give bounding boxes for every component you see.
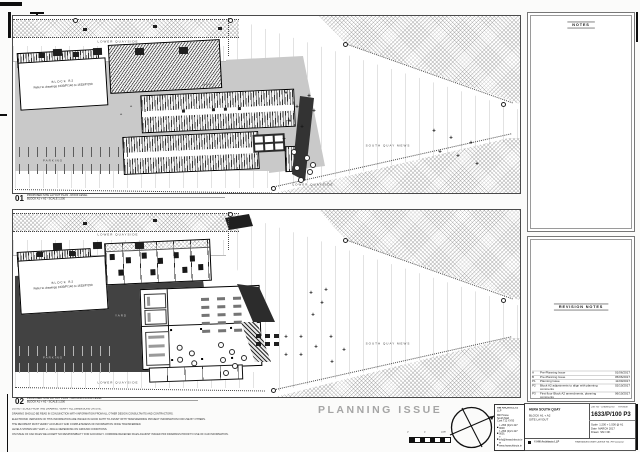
rooflight [69,251,75,256]
label-lower-quayside-bottom: LOWER QUAYSIDE [97,382,138,385]
grid-cross: + [130,104,132,109]
label-mews: MEWS [202,84,215,87]
tree-icon: + [475,163,479,168]
title-block-fields: Scale 1:200 + 1:500 @ A1 Date MARCH 2017… [591,423,631,434]
divider [589,420,635,421]
number-label: Job No - Drawing No [591,406,614,409]
furniture [190,255,195,261]
rev-id: P1 [532,379,540,383]
parking-tick [100,147,101,157]
plot-roof [53,49,62,56]
parking-tick [91,164,92,174]
parking-tick [82,346,83,356]
parking-tick [19,363,20,373]
furniture [110,254,115,260]
furniture [174,252,179,258]
tree-icon: + [284,336,288,341]
planter [256,342,261,346]
bin [265,136,273,142]
parking-tick [100,363,101,373]
parking-tick [118,147,119,157]
margin-line [7,394,8,452]
plot-roof [135,242,144,249]
parking-tick [28,363,29,373]
tree-icon: + [320,302,324,307]
boundary-line [228,18,229,56]
plot-roof [93,48,102,55]
rev-date: 11/09/2017 [609,379,630,383]
planter [265,334,270,338]
tree-icon: + [456,155,460,160]
parking-tick [28,346,29,356]
number-labels: Job No - Drawing No Revision [591,406,628,409]
rev-date: 05/06/2017 [609,375,630,379]
drawing-number: 1633/P/100 P3 [591,412,631,418]
bin [265,144,273,150]
disclaimer: DRAWING SHOULD BE READ IN CONJUNCTION WI… [12,413,247,416]
table-symbol [310,162,316,168]
tree-icon: + [287,120,291,125]
disclaimer: LEVELS SHOWN MAY VARY +/- 300mm DEPENDIN… [12,428,247,431]
parking-tick [73,363,74,373]
survey-marker [501,298,506,303]
table-symbol [304,155,310,161]
disclaimer: ON ISSUE OF CAD FILES WE ACCEPT NO RESPO… [12,433,247,436]
seating [201,298,209,301]
grid-cross: + [132,88,134,93]
parking-tick [127,147,128,157]
tree-icon: + [307,95,311,100]
wc-room [144,309,167,325]
planning-issue-stamp: PLANNING ISSUE [318,404,442,416]
project-info: HERA SOUTH QUAY BLOCK A1 + A2 SITE LAYOU… [529,408,591,422]
tree-icon: + [324,289,328,294]
furniture [182,267,187,273]
tree-icon: + [342,349,346,354]
label-lower-quayside-bottom: LOWER QUAYSIDE [292,184,333,187]
wc-room [144,293,167,309]
table-symbol [291,149,297,155]
table-symbol [232,363,238,369]
label-yard: YARD [115,315,127,318]
mews-roof-edge [105,240,209,253]
rev-note: Pre-Planning Issue [540,375,609,379]
divider [525,438,635,439]
fold-mark [0,114,7,116]
date-label: Date [591,427,597,430]
boundary-mark [153,219,157,222]
architect-info: HW ARCHITECTS LLP Mill House South Mall … [497,407,522,448]
planter [274,342,279,346]
mews-houses [104,239,212,286]
rev-date: 06/10/2017 [609,392,630,400]
parking-tick [73,147,74,157]
drawn-label: Drawn [591,431,599,434]
seating [217,297,225,300]
grid-cross: + [142,88,144,93]
survey-marker [271,388,276,393]
furniture [142,252,147,258]
table-symbol [177,357,183,363]
seating [234,329,242,332]
furniture [150,269,155,275]
parking-tick [55,147,56,157]
margin-line [636,12,638,42]
plan1-number: 01 [15,194,24,203]
parking-tick [37,164,38,174]
boundary-mark [83,28,87,31]
parking-tick [64,147,65,157]
furniture [198,264,203,270]
survey-marker [228,18,233,23]
parking-tick [118,164,119,174]
parking-tick [55,363,56,373]
tree-icon: + [330,361,334,366]
dormer [224,108,227,111]
disclaimer-notes: DO NOT SCALE FROM THIS DRAWING. VERIFY A… [12,408,256,438]
parking-tick [64,363,65,373]
parking-tick [28,164,29,174]
date-value: MARCH 2017 [598,427,615,430]
survey-marker [73,18,78,23]
project-name: HERA SOUTH QUAY [529,408,591,412]
revision-label: Revision [618,406,628,409]
column [171,359,173,361]
scale-bar-label: 0 [407,431,408,434]
rev-date: 02/10/2017 [609,384,630,392]
parking-tick [55,164,56,174]
table-symbol [229,349,235,355]
revision-notes-title: REVISION NOTES [554,304,608,311]
revision-row: B Pre-Planning Issue 05/06/2017 [532,375,630,379]
parking-tick [82,147,83,157]
tree-icon: + [329,336,333,341]
plot-roof [53,243,62,250]
parking-tick [127,164,128,174]
seating [218,313,226,316]
notes-title: NOTES [567,22,594,29]
parking-tick [82,164,83,174]
table-symbol [223,370,229,376]
kitchen-room [145,331,170,366]
disclaimer: THE RECIPIENT MUST VERIFY ACCURACY AND C… [12,423,247,426]
drawn-value: SM / DK [600,431,610,434]
parking-tick [91,147,92,157]
table-symbol [298,177,304,183]
column [231,357,233,359]
seating [233,297,241,300]
drawing-sheet: BLOCK B2 Refer to drawings 1633/P/140 to… [0,0,640,452]
seating [233,305,241,308]
grid-cross: + [112,88,114,93]
parking-tick [109,363,110,373]
tree-icon: + [311,314,315,319]
parking-tick [109,147,110,157]
boundary-line [228,212,229,250]
table-symbol [294,165,300,171]
bin [275,143,283,149]
table-symbol [220,357,226,363]
boundary-line [15,189,272,194]
bin-store [253,133,286,153]
plan-viewport-ground: BLOCK B2 Refer to drawings 1633/P/140 to… [12,209,521,398]
seating [234,321,242,324]
planter [274,334,279,338]
rev-note: Block A2 adjustments to align with plann… [540,384,609,392]
building-a-roof [140,89,296,134]
parking-tick [37,147,38,157]
tree-icon: + [314,346,318,351]
corner-mark [8,12,11,38]
seating [201,306,209,309]
revision-notes-panel: REVISION NOTES A Pre-Planning Issue 01/0… [527,236,635,402]
copyright-text: © HW Architects LLP [534,441,559,444]
scale-label: Scale [591,423,598,426]
parking-tick [109,346,110,356]
table-symbol [241,355,247,361]
scale-bar-label: 10m [441,431,446,434]
disclaimer: ELECTRONIC VERSIONS OF THIS INFORMATION … [12,418,247,421]
column [200,328,202,330]
block-b2-note: BLOCK B2 Refer to drawings 1633/P/140 to… [17,255,108,314]
bin [255,144,263,150]
rev-id: A [532,371,540,375]
label-lower-quayside-top: LOWER QUAYSIDE [97,234,138,237]
revision-table: A Pre-Planning Issue 01/06/2017 B Pre-Pl… [532,370,630,399]
scale-value: 1:200 + 1:500 @ A1 [599,423,623,426]
seating [218,329,226,332]
parking-tick [19,147,20,157]
revision-row: P1 Planning Issue 11/09/2017 [532,379,630,383]
parking-tick [100,164,101,174]
plan2-caption: PROPOSED SITE LAYOUT PLAN - GROUND FLOOR… [27,397,198,403]
parking-tick [46,147,47,157]
label-south-quay-mews: SOUTH QUAY MEWS [366,145,411,148]
parking-tick [46,363,47,373]
dormer [182,109,185,112]
grid-cross: + [120,112,122,117]
architect-stamp: HW ARCHITECTS LLP Mill House South Mall … [494,404,525,451]
tree-icon: + [432,130,436,135]
drawing-title: SITE LAYOUT [529,418,591,422]
seating [202,314,210,317]
parking-tick [91,346,92,356]
parking-tick [55,346,56,356]
tree-icon: + [300,126,304,131]
boundary-mark [83,222,87,225]
parking-tick [19,164,20,174]
tree-icon: + [449,137,453,142]
label-parking: PARKING [43,160,63,163]
column [201,358,203,360]
block-b2-note: BLOCK B2 Refer to drawings 1633/P/140 to… [18,57,109,110]
revision-row: P3 First floor Block A2 amendments, plan… [532,391,630,399]
bin [255,136,263,142]
parking-tick [19,346,20,356]
seating [202,322,210,325]
furniture [118,270,123,276]
plan1-caption: PROPOSED SITE LAYOUT PLAN - ROOF LEVEL B… [27,194,225,200]
parking-tick [91,363,92,373]
scale-bar [409,437,451,443]
survey-marker [343,42,348,47]
parking-tick [28,147,29,157]
table-symbol [218,342,224,348]
rev-id: B [532,375,540,379]
tree-icon: + [309,292,313,297]
rooflight [37,252,43,257]
label-south-quay-mews: SOUTH QUAY MEWS [366,343,411,346]
column [230,327,232,329]
furniture [126,257,131,263]
tree-icon: + [469,142,473,147]
margin-line [636,404,638,450]
firm-logo-icon [528,441,531,444]
plot-roof [179,47,188,54]
building-b-roof [122,131,260,175]
label-yard: YARD [141,119,153,122]
furniture [158,258,163,264]
dormer [212,108,215,111]
dormer [238,107,241,110]
parking-tick [73,164,74,174]
parking-tick [82,363,83,373]
seating [234,313,242,316]
label-parking: PARKING [43,357,63,360]
rev-id: P2 [532,384,540,392]
survey-marker [501,102,506,107]
table-symbol [189,350,195,356]
parking-tick [100,346,101,356]
rev-date: 01/06/2017 [609,371,630,375]
parking-tick [109,164,110,174]
north-arrow-icon [449,404,495,451]
parking-tick [37,346,38,356]
scale-bar-label: 5 [424,431,425,434]
parking-tick [73,346,74,356]
seating [217,305,225,308]
licence-text: Reproduced under Licence No. AR 0021017 [575,441,624,444]
plan2-number: 02 [15,397,24,406]
plan-viewport-roof: BLOCK B2 Refer to drawings 1633/P/140 to… [12,15,521,194]
rev-note: First floor Block A2 amendments, plannin… [540,392,609,400]
rooflight [73,52,79,57]
tree-icon: + [438,151,442,156]
table-symbol [307,169,313,175]
rooflight [39,53,45,58]
plot-roof [93,242,102,249]
rev-id: P3 [532,392,540,400]
tree-icon: + [284,92,288,97]
tree-icon: + [312,110,316,115]
tree-icon: + [299,354,303,359]
quay-hatch-band [13,213,239,232]
parking-tick [37,363,38,373]
parking-tick [64,346,65,356]
corner-mark [0,2,22,6]
parking-tick [46,164,47,174]
survey-marker [343,238,348,243]
rev-note: Planning Issue [540,379,609,383]
seating [202,330,210,333]
boundary-mark [153,25,157,28]
tree-icon: + [295,106,299,111]
plan1-caption-scale: BLOCK A1 + A2 - SCALE 1:200 [27,198,225,201]
boundary-mark [218,27,222,30]
parking-tick [46,346,47,356]
quay-hatch-band [13,19,239,38]
architect-contact: w www.hwarchitects.ie [497,442,522,448]
parking-tick [64,164,65,174]
label-lower-quayside-top: LOWER QUAYSIDE [97,41,138,44]
rev-note: Pre-Planning Issue [540,371,609,375]
plot-roof [135,48,144,55]
grid-cross: + [144,109,146,114]
planter [265,342,270,346]
table-symbol [177,345,183,351]
grid-cross: + [122,88,124,93]
notes-panel: NOTES [527,12,635,232]
column [170,329,172,331]
survey-marker [271,186,276,191]
planter [256,334,261,338]
tree-icon: + [284,354,288,359]
plan2-caption-scale: BLOCK A1 + A2 - SCALE 1:200 [27,401,198,404]
disclaimer: DO NOT SCALE FROM THIS DRAWING. VERIFY A… [12,408,247,411]
revision-row: P2 Block A2 adjustments to align with pl… [532,383,630,391]
survey-marker [228,212,233,217]
tree-icon: + [299,336,303,341]
seating [218,321,226,324]
revision-row: A Pre-Planning Issue 01/06/2017 [532,370,630,374]
title-block: HERA SOUTH QUAY BLOCK A1 + A2 SITE LAYOU… [524,403,636,451]
tree-icon: + [282,138,286,143]
